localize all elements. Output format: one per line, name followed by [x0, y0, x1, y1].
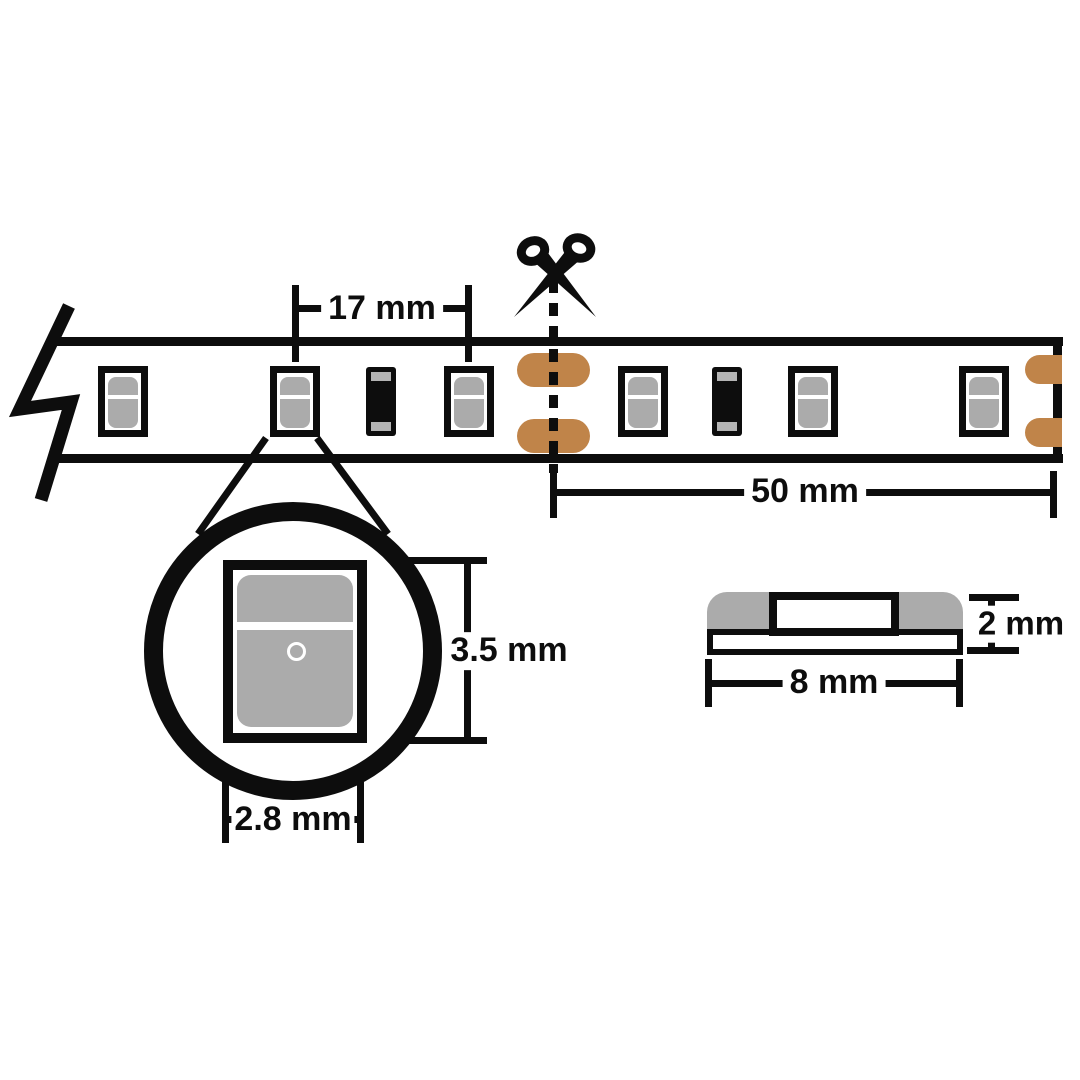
profile-width-dimension-label: 8 mm [783, 664, 886, 702]
edge-solder-pad [1025, 418, 1062, 447]
led-chip-top [108, 377, 138, 395]
resistor-band [371, 422, 391, 431]
led-width-dimension-label: 2.8 mm [231, 801, 354, 839]
led-chip-top [798, 377, 828, 395]
dimension-tick [465, 285, 472, 362]
magnified-led-die-dot [287, 642, 306, 661]
led-height-dimension-label: 3.5 mm [443, 632, 574, 670]
led-chip-top [280, 377, 310, 395]
cross-section-led [769, 592, 899, 636]
led-component [444, 366, 494, 437]
strip-break-icon [20, 306, 71, 500]
led-chip-bottom [628, 399, 658, 428]
led-chip-bottom [454, 399, 484, 428]
led-chip-top [969, 377, 999, 395]
led-component [270, 366, 320, 437]
resistor-band [717, 422, 737, 431]
led-chip-bottom [798, 399, 828, 428]
pitch-dimension-label: 17 mm [321, 290, 443, 328]
led-component [618, 366, 668, 437]
led-chip-top [628, 377, 658, 395]
led-chip-bottom [108, 399, 138, 428]
linework-overlay [0, 0, 1080, 1080]
magnified-led-chip-top [237, 575, 353, 622]
led-chip-bottom [969, 399, 999, 428]
led-strip-dimension-diagram: 17 mm 50 mm 3.5 mm 2.8 mm 2 mm [0, 0, 1080, 1080]
resistor-component [366, 367, 396, 436]
led-component [788, 366, 838, 437]
resistor-component [712, 367, 742, 436]
resistor-band [371, 372, 391, 381]
led-component [98, 366, 148, 437]
strip-top-edge [57, 337, 1063, 346]
led-component [959, 366, 1009, 437]
cut-line [549, 280, 558, 473]
edge-solder-pad [1025, 355, 1062, 384]
resistor-band [717, 372, 737, 381]
led-chip-bottom [280, 399, 310, 428]
strip-bottom-edge [57, 454, 1063, 463]
led-chip-top [454, 377, 484, 395]
profile-height-dimension-label: 2 mm [975, 606, 1067, 643]
dimension-tick [292, 285, 299, 362]
cut-length-dimension-label: 50 mm [744, 473, 866, 511]
